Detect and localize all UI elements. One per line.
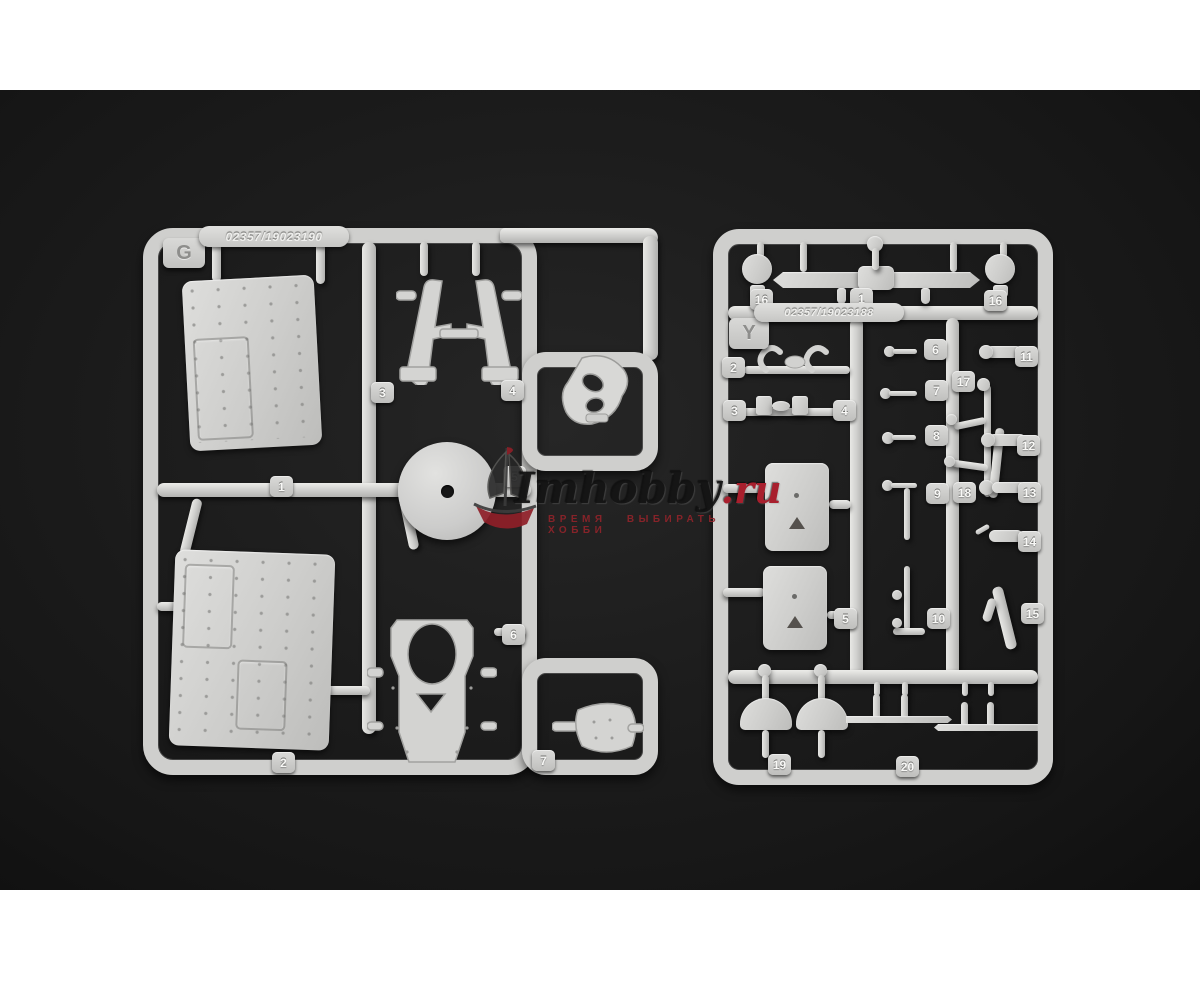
part-number-tags-right: 161162346789171811121314155101920 [0, 90, 1200, 890]
mold-code: 02357/19023190 [225, 230, 322, 244]
part-number-tag: 15 [1021, 603, 1044, 624]
part-number-tag: 8 [925, 425, 948, 446]
part-number-tag: 3 [723, 400, 746, 421]
part-number-tag: 5 [834, 608, 857, 629]
mold-code: 02357/19023188 [784, 307, 874, 319]
part-number-tag: 2 [722, 357, 745, 378]
part-number-tag: 6 [924, 339, 947, 360]
part-number-tag: 13 [1018, 482, 1041, 503]
part-number-tag: 19 [768, 754, 791, 775]
part-number-tag: 4 [833, 400, 856, 421]
sprue-right: Y 02357/19023188 [0, 90, 1200, 890]
part-number-tag: 14 [1018, 531, 1041, 552]
part-number-tag: 12 [1017, 435, 1040, 456]
part-number-tag: 7 [925, 380, 948, 401]
part-number-tag: 16 [984, 290, 1007, 311]
part-number-tag: 20 [896, 756, 919, 777]
sprue-letter-tab: G [163, 238, 205, 268]
part-number-tag: 10 [927, 608, 950, 629]
part-number-tag: 17 [952, 371, 975, 392]
white-band-bottom [0, 890, 1200, 982]
white-band-top [0, 0, 1200, 90]
part-number-tag: 18 [953, 482, 976, 503]
mold-code-plate: 02357/19023190 [199, 226, 349, 247]
sprue-letter-tab: Y [729, 318, 769, 349]
mold-code-plate: 02357/19023188 [754, 303, 904, 322]
product-photo-page: G 02357/19023190 [0, 0, 1200, 982]
sprue-letter: G [176, 242, 192, 265]
sprue-letter: Y [742, 322, 755, 345]
part-number-tag: 9 [926, 483, 949, 504]
photo-background: G 02357/19023190 [0, 90, 1200, 890]
part-number-tag: 11 [1015, 346, 1038, 367]
